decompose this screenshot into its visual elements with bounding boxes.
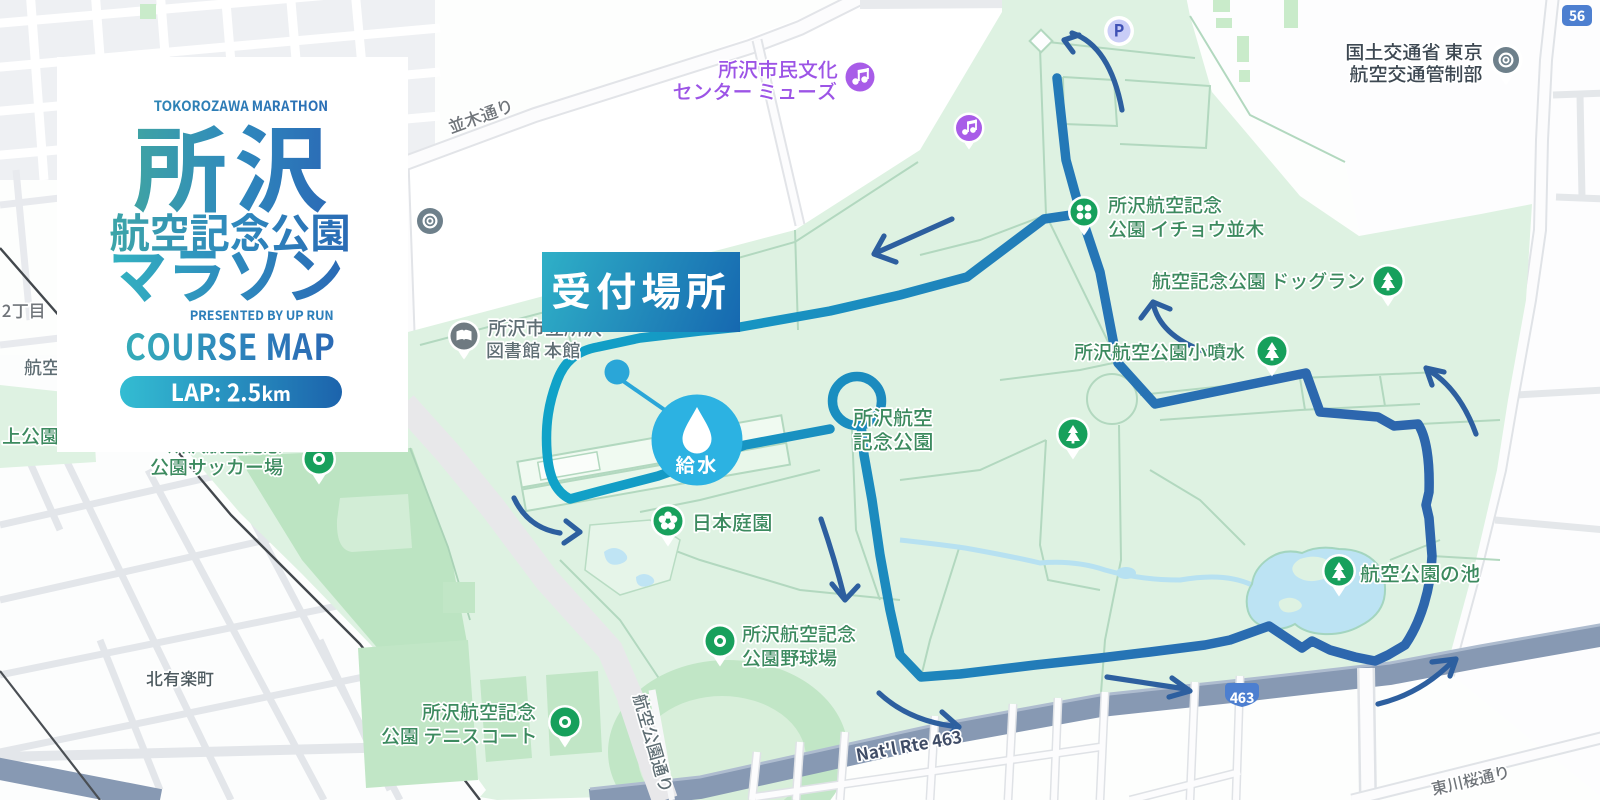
svg-text:航空交通管制部: 航空交通管制部 — [1349, 60, 1482, 87]
svg-text:図書館 本館: 図書館 本館 — [486, 337, 580, 363]
svg-text:航空記念公園 ドッグラン: 航空記念公園 ドッグラン — [1152, 267, 1365, 294]
svg-text:マラソン: マラソン — [108, 227, 344, 316]
svg-text:所沢航空記念: 所沢航空記念 — [742, 620, 857, 647]
svg-text:日本庭園: 日本庭園 — [692, 507, 772, 536]
svg-text:航空: 航空 — [24, 354, 60, 380]
svg-text:所沢航空公園小噴水: 所沢航空公園小噴水 — [1074, 338, 1245, 365]
svg-text:上公園: 上公園 — [2, 422, 59, 449]
svg-text:北有楽町: 北有楽町 — [146, 665, 214, 690]
svg-text:記念公園: 記念公園 — [853, 426, 933, 455]
svg-text:P: P — [1114, 18, 1125, 42]
svg-text:受付場所: 受付場所 — [551, 260, 731, 318]
svg-text:公園サッカー場: 公園サッカー場 — [150, 453, 283, 480]
svg-text:LAP: 2.5km: LAP: 2.5km — [171, 374, 292, 408]
svg-text:56: 56 — [1569, 6, 1586, 26]
svg-text:公園 イチョウ並木: 公園 イチョウ並木 — [1108, 215, 1264, 242]
svg-text:2丁目: 2丁目 — [2, 297, 46, 322]
svg-text:463: 463 — [1230, 688, 1255, 708]
svg-text:公園野球場: 公園野球場 — [742, 644, 837, 671]
svg-text:所沢航空記念: 所沢航空記念 — [422, 698, 537, 725]
svg-text:航空公園の池: 航空公園の池 — [1360, 558, 1480, 587]
svg-text:COURSE MAP: COURSE MAP — [125, 319, 335, 371]
svg-text:所沢航空記念: 所沢航空記念 — [1108, 191, 1223, 218]
svg-text:公園 テニスコート: 公園 テニスコート — [381, 722, 537, 749]
svg-text:給水: 給水 — [675, 449, 718, 478]
svg-text:センター ミューズ: センター ミューズ — [673, 76, 838, 105]
